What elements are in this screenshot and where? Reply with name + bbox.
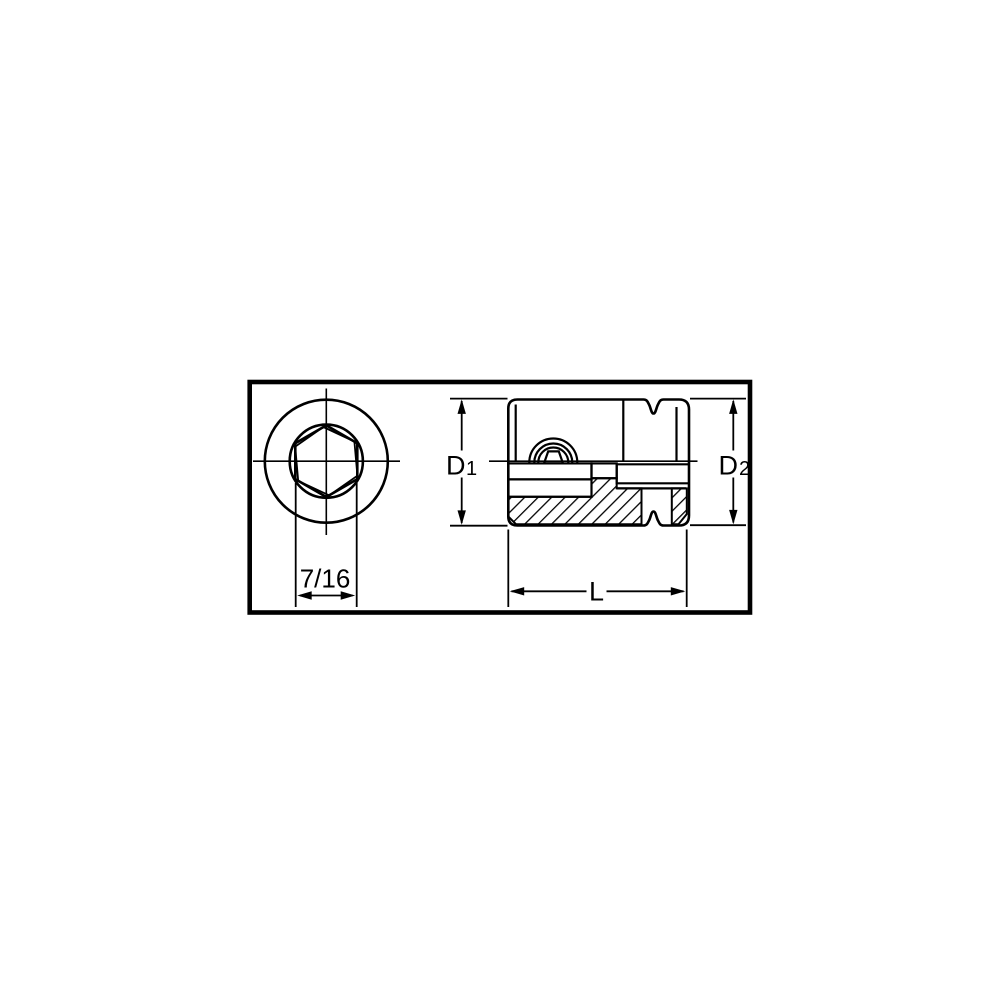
dimension-d2: D 2 <box>690 399 750 526</box>
section-hatch-left <box>508 478 641 524</box>
hex-size-label: 7/16 <box>300 564 351 594</box>
square-bore <box>617 464 688 483</box>
d1-label: D <box>446 451 466 481</box>
d2-arrowhead-up <box>729 399 737 414</box>
pilot-hole <box>592 463 617 478</box>
l-arrowhead-right <box>671 587 686 595</box>
l-arrowhead-left <box>510 587 525 595</box>
d2-arrowhead-down <box>729 510 737 525</box>
hex-bore-edge-1 <box>508 463 591 479</box>
d2-label: D <box>719 451 739 481</box>
d1-label-subscript: 1 <box>466 458 477 480</box>
side-view <box>489 400 698 526</box>
socket-dimension-diagram: 7/16 <box>0 0 1000 1000</box>
d2-label-subscript: 2 <box>739 458 750 480</box>
front-view <box>253 389 400 536</box>
dimension-d1: D 1 <box>446 399 508 526</box>
d1-arrowhead-up <box>458 399 466 414</box>
section-hatch-right <box>672 488 687 524</box>
hex-bore-edge-2 <box>508 479 591 496</box>
d1-arrowhead-down <box>458 510 466 525</box>
l-label: L <box>589 577 604 607</box>
dimension-l: L <box>508 530 686 608</box>
